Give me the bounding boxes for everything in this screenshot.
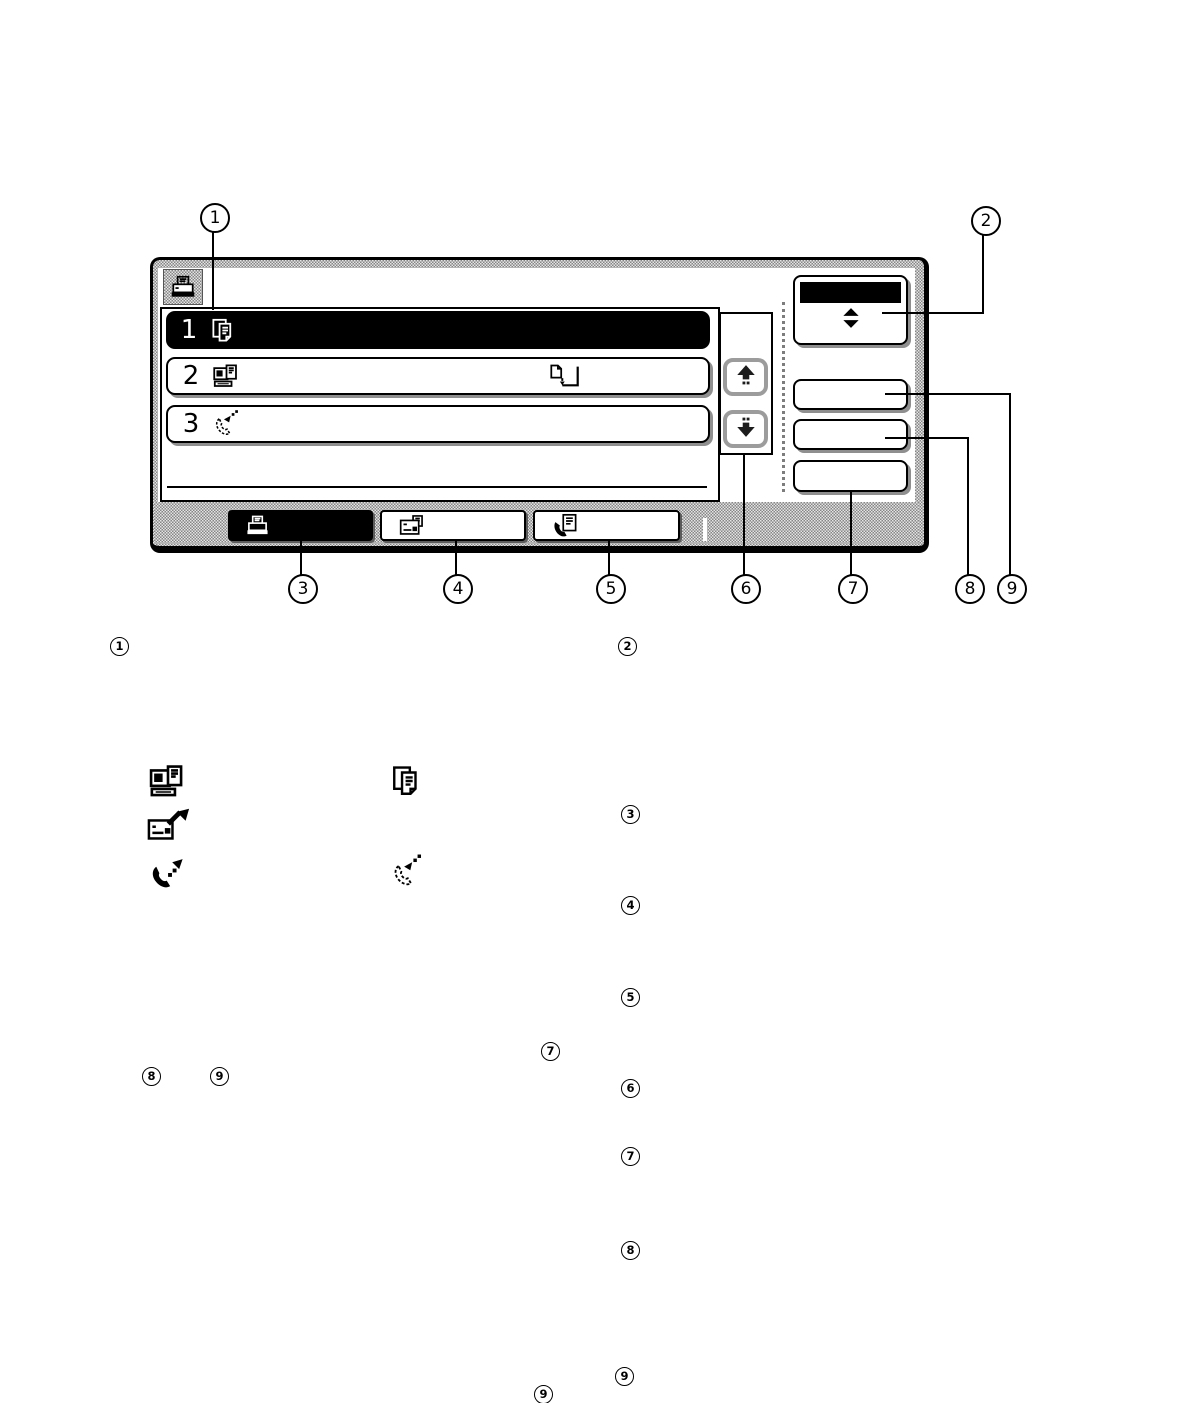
scroll-up-arrow-icon bbox=[734, 363, 758, 391]
callout-5: 5 bbox=[596, 574, 626, 604]
callout-9-label: 9 bbox=[1007, 581, 1018, 598]
marker-label: 6 bbox=[626, 1083, 634, 1095]
scroll-down-arrow-icon bbox=[734, 415, 758, 443]
screen-header-chip bbox=[163, 269, 203, 305]
marker-label: 9 bbox=[215, 1071, 223, 1083]
tab-phone[interactable] bbox=[533, 510, 680, 541]
marker-1: 1 bbox=[110, 637, 129, 656]
marker-label: 3 bbox=[626, 809, 634, 821]
copy-job-icon bbox=[210, 317, 237, 344]
callout-7-label: 7 bbox=[848, 581, 859, 598]
callout-line-9-h bbox=[885, 393, 1010, 395]
list-bottom-rule bbox=[167, 486, 707, 488]
side-button-2[interactable] bbox=[793, 419, 908, 450]
callout-5-label: 5 bbox=[606, 581, 617, 598]
callout-line-7 bbox=[850, 491, 852, 575]
callout-3-label: 3 bbox=[298, 581, 309, 598]
marker-7-inline: 7 bbox=[541, 1042, 560, 1061]
callout-1-label: 1 bbox=[210, 210, 221, 227]
marker-label: 2 bbox=[623, 641, 631, 653]
scroll-down-button[interactable] bbox=[723, 410, 768, 448]
marker-label: 9 bbox=[539, 1389, 547, 1401]
marker-label: 9 bbox=[620, 1371, 628, 1383]
marker-9-inline: 9 bbox=[210, 1067, 229, 1086]
computer-print-job-icon bbox=[212, 363, 241, 390]
job-switch-title-bar bbox=[800, 282, 901, 303]
callout-1: 1 bbox=[200, 203, 230, 233]
marker-label: 5 bbox=[626, 992, 634, 1004]
callout-8-label: 8 bbox=[965, 581, 976, 598]
send-document-icon bbox=[145, 808, 193, 844]
marker-label: 8 bbox=[147, 1071, 155, 1083]
job-row-1[interactable]: 1 bbox=[166, 311, 710, 349]
marker-5: 5 bbox=[621, 988, 640, 1007]
marker-9: 9 bbox=[615, 1367, 634, 1386]
panel-dotted-divider bbox=[782, 302, 785, 492]
band-tick-mark bbox=[703, 518, 707, 541]
marker-label: 7 bbox=[626, 1151, 634, 1163]
callout-line-8-h bbox=[885, 437, 968, 439]
computer-print-job-icon bbox=[148, 763, 188, 801]
manual-page: 1 2 bbox=[0, 0, 1188, 1403]
marker-3: 3 bbox=[621, 805, 640, 824]
spooling-document-icon bbox=[548, 363, 581, 394]
scroll-up-button[interactable] bbox=[723, 358, 768, 396]
callout-8: 8 bbox=[955, 574, 985, 604]
marker-4: 4 bbox=[621, 896, 640, 915]
marker-label: 7 bbox=[546, 1046, 554, 1058]
copy-job-icon bbox=[390, 763, 424, 799]
marker-9-inline-2: 9 bbox=[534, 1385, 553, 1403]
marker-8-inline: 8 bbox=[142, 1067, 161, 1086]
marker-label: 4 bbox=[626, 900, 634, 912]
callout-line-2-v bbox=[982, 231, 984, 313]
callout-line-5 bbox=[608, 540, 610, 575]
tab-printer[interactable] bbox=[228, 510, 373, 541]
callout-4-label: 4 bbox=[453, 581, 464, 598]
marker-7: 7 bbox=[621, 1147, 640, 1166]
job-number: 1 bbox=[178, 317, 200, 343]
callout-line-3 bbox=[300, 540, 302, 575]
marker-label: 8 bbox=[626, 1245, 634, 1257]
callout-line-2-h bbox=[882, 312, 984, 314]
marker-8: 8 bbox=[621, 1241, 640, 1260]
callout-6-label: 6 bbox=[741, 581, 752, 598]
incoming-call-icon bbox=[390, 850, 422, 893]
job-switch-button[interactable] bbox=[793, 275, 908, 345]
callout-6: 6 bbox=[731, 574, 761, 604]
side-button-3[interactable] bbox=[793, 460, 908, 492]
callout-4: 4 bbox=[443, 574, 473, 604]
callout-2-label: 2 bbox=[981, 213, 992, 230]
job-row-3[interactable]: 3 bbox=[166, 405, 710, 443]
job-number: 3 bbox=[180, 411, 202, 437]
phone-document-icon bbox=[552, 513, 579, 538]
marker-6: 6 bbox=[621, 1079, 640, 1098]
callout-line-4 bbox=[455, 540, 457, 575]
job-row-2[interactable]: 2 bbox=[166, 357, 710, 395]
callout-9: 9 bbox=[997, 574, 1027, 604]
job-number: 2 bbox=[180, 363, 202, 389]
tab-fax[interactable] bbox=[380, 510, 526, 541]
callout-7: 7 bbox=[838, 574, 868, 604]
incoming-call-icon bbox=[212, 410, 239, 439]
callout-line-9-v bbox=[1009, 393, 1011, 575]
fax-document-icon bbox=[399, 514, 426, 537]
marker-2: 2 bbox=[618, 637, 637, 656]
callout-line-8-v bbox=[967, 437, 969, 575]
printer-icon bbox=[169, 274, 197, 300]
job-switch-arrows-icon bbox=[795, 307, 906, 329]
callout-line-1 bbox=[212, 228, 214, 310]
outgoing-call-icon bbox=[147, 855, 185, 891]
marker-label: 1 bbox=[115, 641, 123, 653]
callout-line-6 bbox=[743, 455, 745, 575]
printer-icon bbox=[245, 514, 270, 537]
callout-2: 2 bbox=[971, 206, 1001, 236]
callout-3: 3 bbox=[288, 574, 318, 604]
